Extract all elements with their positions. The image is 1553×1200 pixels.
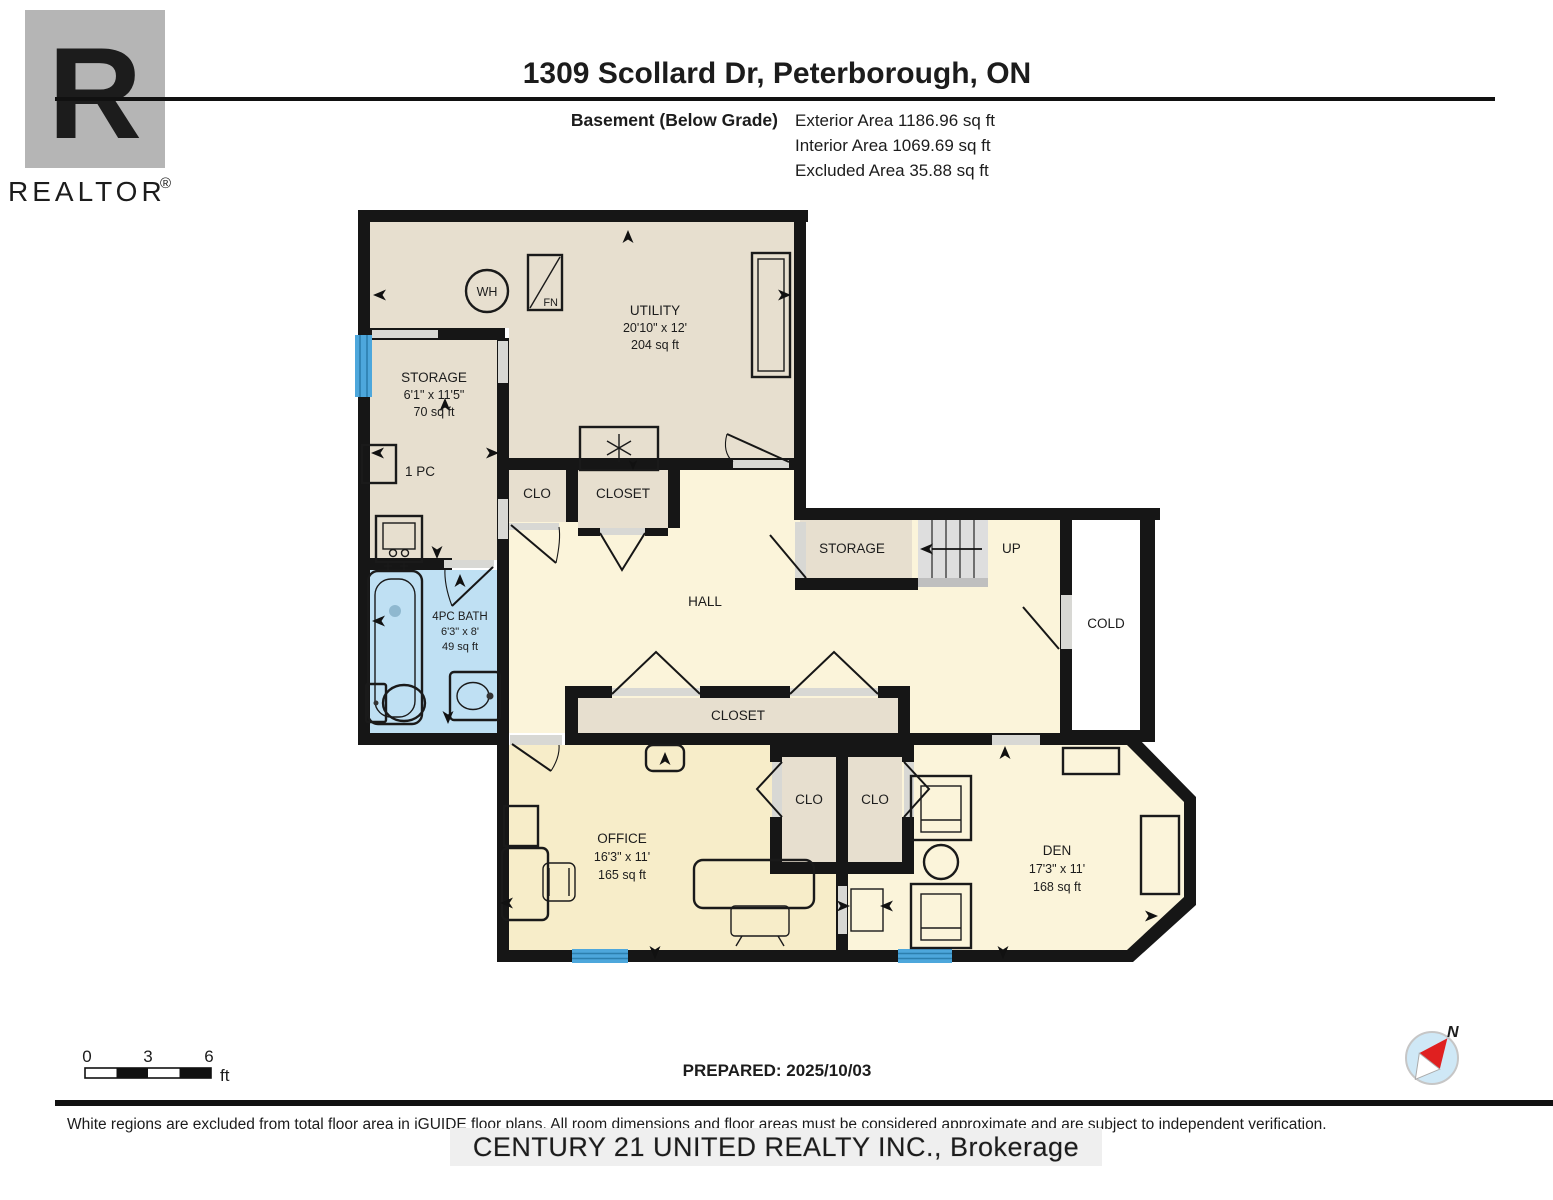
bath-name: 4PC BATH xyxy=(432,611,487,623)
realtor-logo-brand: REALTOR xyxy=(8,176,166,207)
wall xyxy=(358,733,508,745)
utility-area: 204 sq ft xyxy=(631,338,679,352)
excluded-area: Excluded Area 35.88 sq ft xyxy=(795,161,989,180)
footer-rule xyxy=(55,1100,1553,1106)
clo-den-name: CLO xyxy=(861,792,889,807)
header: R REALTOR ® 1309 Scollard Dr, Peterborou… xyxy=(8,10,1495,207)
wall xyxy=(578,528,600,536)
den-dims: 17'3" x 11' xyxy=(1029,862,1085,876)
door-opening xyxy=(600,528,645,535)
clo-office-name: CLO xyxy=(795,792,823,807)
cold-name: COLD xyxy=(1087,616,1125,631)
utility-dims: 20'10" x 12' xyxy=(623,321,687,335)
door-opening xyxy=(498,341,508,383)
one-pc-name: 1 PC xyxy=(405,464,435,479)
office-dims: 16'3" x 11' xyxy=(594,850,650,864)
wall xyxy=(358,558,452,570)
door-opening xyxy=(790,688,878,696)
door-opening xyxy=(733,460,789,468)
door-opening xyxy=(372,330,438,338)
wall xyxy=(1140,508,1155,742)
exterior-area: Exterior Area 1186.96 sq ft xyxy=(795,111,995,130)
office-area: 165 sq ft xyxy=(598,868,646,882)
watermark-text: CENTURY 21 UNITED REALTY INC., Brokerage xyxy=(473,1132,1079,1162)
wall xyxy=(898,686,910,733)
compass-north-label: N xyxy=(1447,1024,1459,1041)
stairs-nosing xyxy=(918,578,988,587)
floor-label: Basement (Below Grade) xyxy=(571,110,778,130)
wall xyxy=(565,686,578,733)
hall-name: HALL xyxy=(688,594,722,609)
prepared-date: PREPARED: 2025/10/03 xyxy=(683,1061,872,1080)
realtor-logo-letter: R xyxy=(48,20,142,166)
closet-hall-top-name: CLOSET xyxy=(596,486,650,501)
scale-tick-3: 3 xyxy=(143,1047,152,1066)
storage-left-name: STORAGE xyxy=(401,370,467,385)
scale-bar: 0 3 6 ft xyxy=(82,1047,229,1085)
door-opening xyxy=(992,735,1040,745)
storage-mid-name: STORAGE xyxy=(819,541,885,556)
wall xyxy=(795,578,918,590)
office-name: OFFICE xyxy=(597,831,647,846)
wall xyxy=(770,862,914,874)
wall xyxy=(358,210,370,335)
scale-tick-0: 0 xyxy=(82,1047,91,1066)
closet-hall-bottom-name: CLOSET xyxy=(711,708,765,723)
window-office xyxy=(572,949,628,963)
brokerage-watermark: CENTURY 21 UNITED REALTY INC., Brokerage xyxy=(450,1128,1102,1166)
door-opening xyxy=(498,499,508,539)
room-clo-office xyxy=(782,757,836,862)
interior-area: Interior Area 1069.69 sq ft xyxy=(795,136,991,155)
window-storage-left xyxy=(355,335,372,397)
wall xyxy=(902,745,914,762)
wall xyxy=(836,934,848,962)
wall xyxy=(902,817,914,874)
wall xyxy=(668,470,680,528)
water-heater-label: WH xyxy=(477,285,498,299)
registered-mark: ® xyxy=(160,175,171,192)
wall xyxy=(794,210,806,520)
wall xyxy=(700,686,790,698)
utility-name: UTILITY xyxy=(630,303,680,318)
bath-area: 49 sq ft xyxy=(442,641,478,653)
storage-left-dims: 6'1" x 11'5" xyxy=(404,388,465,402)
wall xyxy=(566,470,578,522)
stairs-up-label: UP xyxy=(1002,541,1021,556)
wall xyxy=(497,950,848,962)
door-opening xyxy=(1061,595,1072,649)
compass: N xyxy=(1405,1024,1459,1087)
scale-unit: ft xyxy=(220,1066,230,1085)
wall xyxy=(1040,733,1135,745)
floor-plan-canvas: R REALTOR ® 1309 Scollard Dr, Peterborou… xyxy=(0,0,1553,1200)
scale-bar-segment xyxy=(117,1068,149,1078)
wall xyxy=(770,745,782,762)
scale-tick-6: 6 xyxy=(204,1047,213,1066)
header-rule xyxy=(55,97,1495,101)
den-area: 168 sq ft xyxy=(1033,880,1081,894)
bath-dims: 6'3" x 8' xyxy=(441,626,479,638)
clo-hall-name: CLO xyxy=(523,486,551,501)
wall xyxy=(794,508,1160,520)
wall xyxy=(770,745,914,757)
floorplan-page: R REALTOR ® 1309 Scollard Dr, Peterborou… xyxy=(0,0,1553,1200)
wall xyxy=(565,733,990,745)
door-opening xyxy=(795,522,806,578)
realtor-logo: R REALTOR ® xyxy=(8,10,171,207)
page-title: 1309 Scollard Dr, Peterborough, ON xyxy=(523,57,1031,90)
door-opening xyxy=(510,735,562,745)
wall xyxy=(770,817,782,874)
furnace-label: FN xyxy=(543,297,558,309)
stairs xyxy=(918,520,988,587)
room-clo-den xyxy=(848,757,902,862)
scale-bar-segment xyxy=(180,1068,212,1078)
door-opening xyxy=(612,688,700,696)
den-name: DEN xyxy=(1043,843,1072,858)
footer: 0 3 6 ft PREPARED: 2025/10/03 N White re… xyxy=(55,1024,1553,1166)
wall xyxy=(358,210,808,222)
storage-left-area: 70 sq ft xyxy=(414,405,456,419)
window-den xyxy=(898,949,952,963)
door-opening xyxy=(444,560,494,568)
wall xyxy=(645,528,668,536)
